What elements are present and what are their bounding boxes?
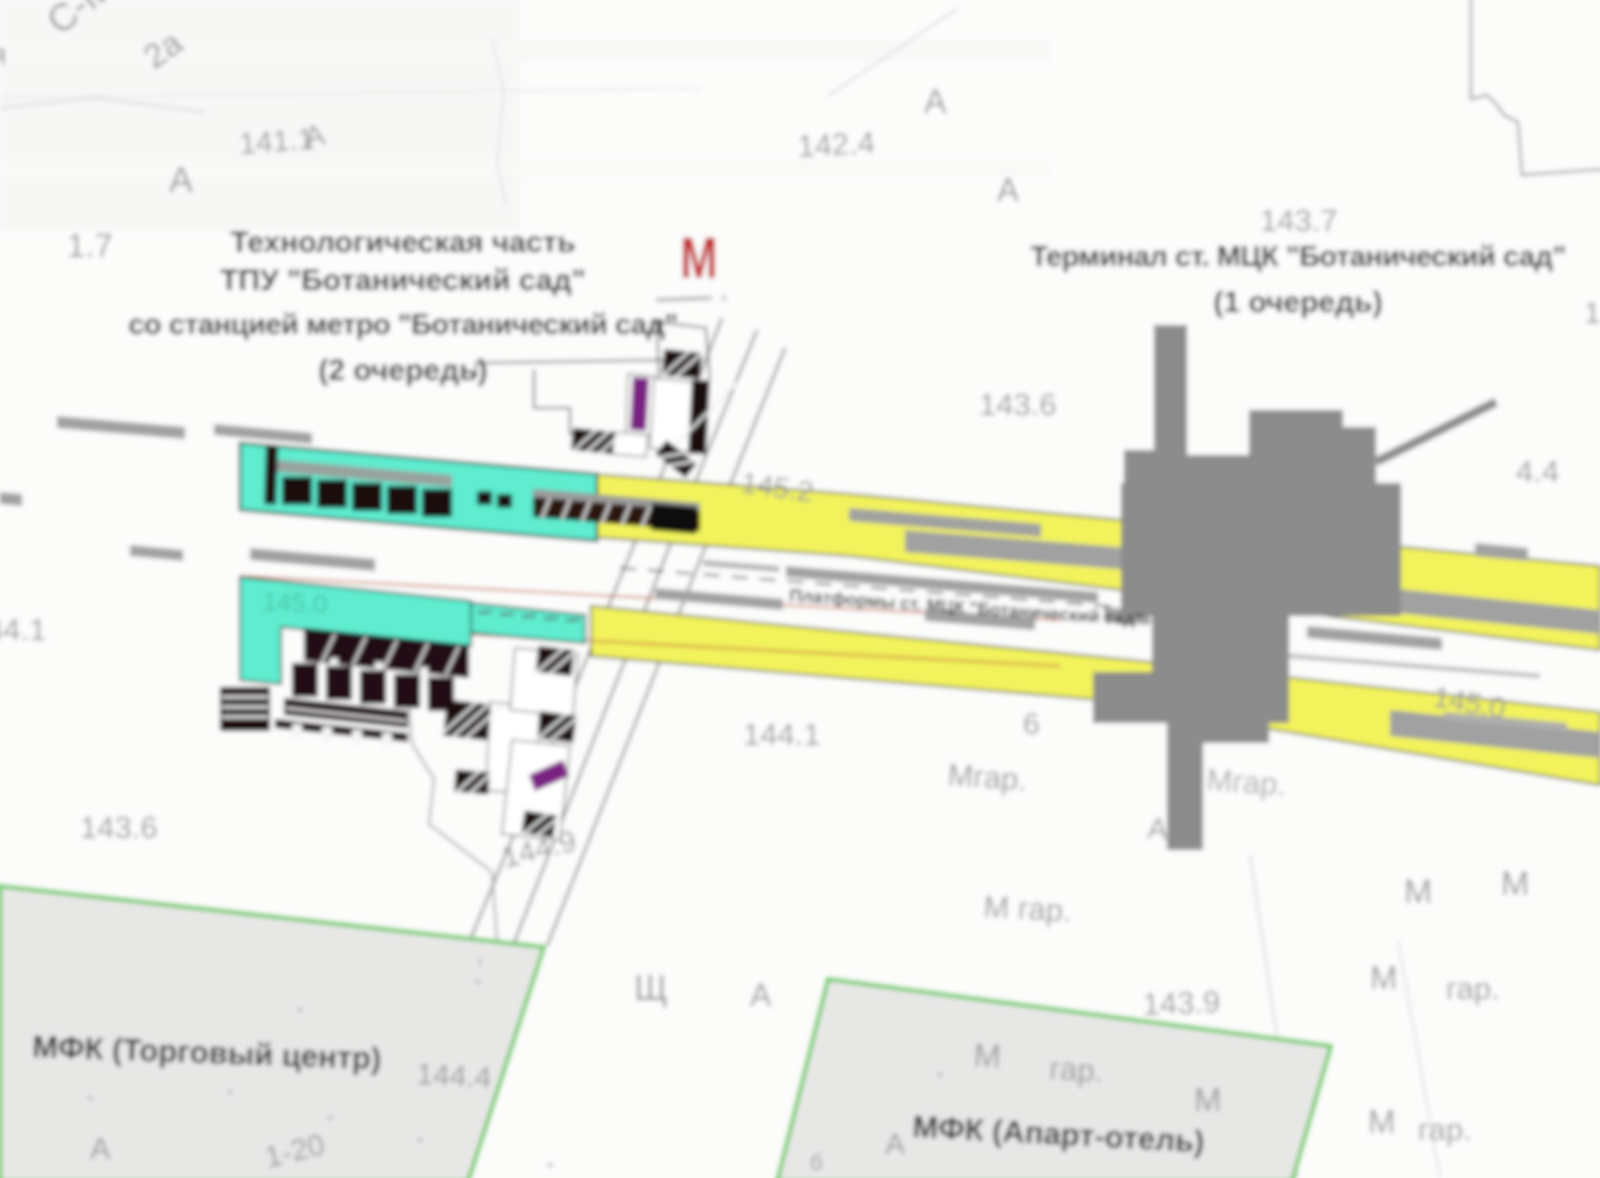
svg-text:(1 очередь): (1 очередь) <box>1213 286 1382 319</box>
svg-text:М: М <box>1368 1103 1396 1140</box>
svg-text:М: М <box>680 227 718 292</box>
svg-text:М гар.: М гар. <box>983 889 1073 929</box>
svg-text:4.4: 4.4 <box>1516 454 1559 489</box>
svg-text:А: А <box>1147 812 1169 846</box>
svg-text:1.7: 1.7 <box>67 227 113 264</box>
svg-text:144.4: 144.4 <box>416 1058 493 1095</box>
svg-text:ТПУ "Ботанический сад": ТПУ "Ботанический сад" <box>220 264 586 297</box>
svg-text:гар.: гар. <box>1446 971 1500 1006</box>
svg-text:со станцией метро "Ботанически: со станцией метро "Ботанический сад" <box>128 309 677 341</box>
svg-text:143.7: 143.7 <box>1260 203 1338 238</box>
svg-text:144.1: 144.1 <box>743 717 821 752</box>
svg-text:б: б <box>810 1150 823 1175</box>
svg-text:6: 6 <box>1023 708 1040 741</box>
svg-text:145.0: 145.0 <box>262 586 329 619</box>
svg-text:гар.: гар. <box>1418 1112 1472 1147</box>
svg-text:Мгар.: Мгар. <box>947 757 1029 797</box>
svg-text:Технологическая часть: Технологическая часть <box>230 226 575 259</box>
svg-text:Мгар.: Мгар. <box>1206 762 1288 802</box>
svg-text:М: М <box>1370 959 1398 996</box>
svg-text:(2 очередь): (2 очередь) <box>318 354 487 387</box>
svg-text:А: А <box>750 977 772 1013</box>
svg-text:143.6: 143.6 <box>979 387 1057 422</box>
svg-text:А: А <box>997 171 1019 208</box>
svg-text:М: М <box>1501 865 1529 903</box>
svg-text:А: А <box>90 1131 111 1166</box>
svg-text:гар.: гар. <box>1049 1051 1104 1089</box>
svg-text:М: М <box>1194 1081 1222 1118</box>
svg-text:1.: 1. <box>1584 297 1600 330</box>
svg-text:142.4: 142.4 <box>797 125 876 164</box>
svg-text:я: я <box>0 38 6 71</box>
svg-text:Щ: Щ <box>634 967 668 1008</box>
svg-text:44.1: 44.1 <box>0 612 46 647</box>
svg-text:143.6: 143.6 <box>80 810 158 845</box>
svg-text:143.9: 143.9 <box>1142 984 1221 1022</box>
svg-text:А: А <box>924 83 947 121</box>
svg-text:А: А <box>885 1128 905 1161</box>
svg-text:М: М <box>1404 873 1432 911</box>
svg-text:М: М <box>973 1036 1002 1074</box>
svg-text:А: А <box>169 159 193 200</box>
svg-text:Терминал ст. МЦК "Ботанический: Терминал ст. МЦК "Ботанический сад" <box>1030 241 1566 273</box>
